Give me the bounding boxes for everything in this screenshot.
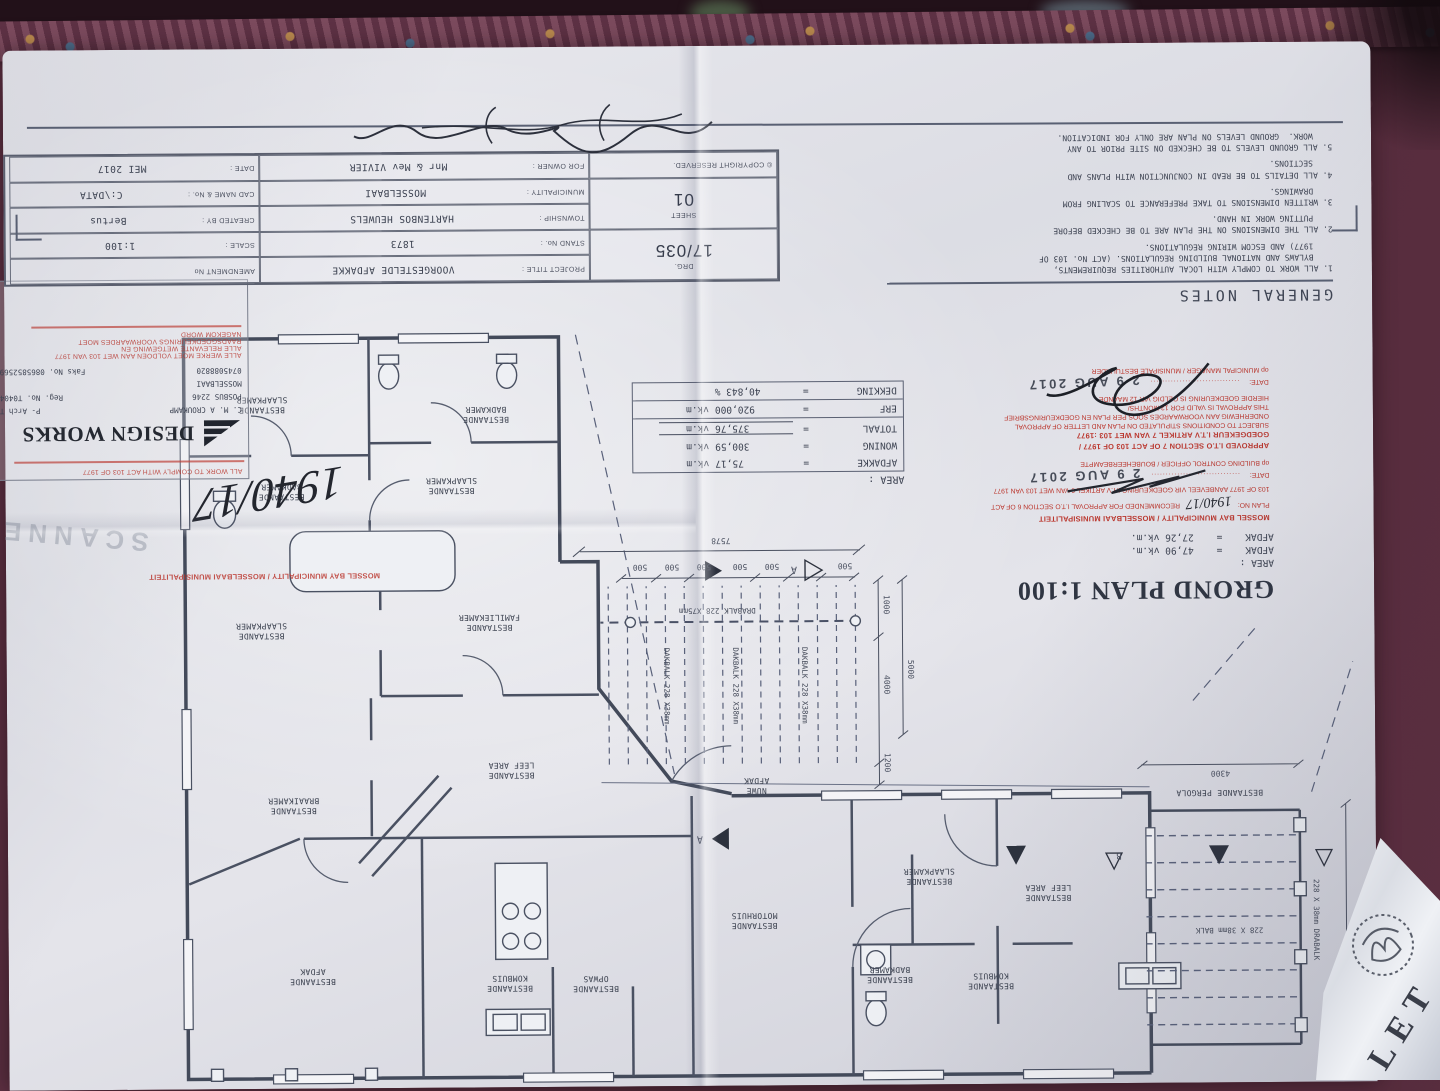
room-label-leef-area: BESTAANDE LEEF AREA [488,760,534,780]
field-label: AMENDMENT No [194,267,255,274]
area-unit: vk.m [659,458,715,469]
plan-heading: GROND PLAN 1:100 AREA : AFDAK = 47,90 vk… [954,531,1275,606]
plan-title: GROND PLAN 1:100 [954,574,1274,606]
area-unit [659,386,715,397]
red-rule [31,325,241,328]
room-label-kombuis: BESTAANDE KOMBUIS [487,974,533,994]
floor-plan-sheet: BESTAANDE SLAAPKAMER BESTAANDE BADKAMER … [2,41,1377,1091]
room-label-nuwe-afdak: NUWE AFDAK [744,776,770,795]
dim-500: 500 [765,562,780,571]
phone: 0745088820 [196,366,241,375]
project-title-cell: PROJECT TITLE : VOORGESTELDE AFDAKKE [260,255,590,283]
design-works-logo-icon [202,418,242,448]
plan-area-line: AFDAK = 47,90 vk.m. [954,544,1274,557]
room-label-slaapkamer: BESTAANDE SLAAPKAMER [236,621,287,641]
room-label-badkamer: BESTAANDE BADKAMER [867,965,913,985]
dim-4000: 4000 [882,675,891,694]
dim-500: 500 [838,561,853,570]
field-label: DATE : [230,164,255,171]
room-label-familiekamer: BESTAANDE FAMILIEKAMER [459,613,521,633]
field-label: TOWNSHIP : [539,213,584,220]
general-note-3: 3. WRITTEN DIMENSIONS TO TAKE PREFERANCE… [882,185,1332,211]
design-works-name: DESIGN WORKS [22,421,194,447]
person-name: C. M. A CROUKAMP [170,405,242,415]
section-marker-a: A [697,833,703,844]
field-value: 1873 [265,237,541,250]
general-note-5: 5. ALL GROUND LEVELS TO BE CHECKED ON SI… [882,130,1332,156]
dim-500: 500 [665,563,680,572]
equals: = [793,440,819,451]
room-label-pergola: BESTAANDE PERGOLA [1176,787,1263,797]
field-label: MUNICIPALITY : [526,188,584,195]
sheet-number: 01 [673,189,694,209]
design-works-city: MOSSELBAAI [0,379,242,390]
signature-municipal-manager [1039,353,1229,424]
general-note-1: 1. ALL WORK TO COMPLY WITH LOCAL AUTHORI… [883,240,1333,277]
general-note-4: 4. ALL DETAILS TO BE READ IN CONJUNCTION… [882,158,1332,184]
field-label: CAD NAME & No. : [188,190,255,197]
room-label-afdak: BESTAANDE AFDAK [290,967,336,987]
field-label: SCALE : [225,241,255,248]
red-overlay-line: ALL WORK TO COMPLY WITH ACT 103 OF 1977 [83,467,243,475]
pobox: POSBUS 2246 [192,392,242,401]
dim-500: 500 [733,562,748,571]
area-unit: vk.m [659,422,715,435]
area-value: 375,76 [715,421,793,435]
reg-no: Reg. No. T0404 [0,393,63,402]
area-row-afdakke: AFDAKKE = 75,17 vk.m [633,454,903,473]
area-row-totaal: TOTAAL = 375,76 vk.m [633,418,903,439]
beam-label-dakbalk: DAKBALK 228 X38mm [731,647,741,724]
signature-building-control [1059,462,1209,497]
stamp-date-label: DATE: [1249,376,1269,385]
area-unit: vk.m [659,441,715,452]
room-label-badkamer: BESTAANDE BADKAMER [463,405,509,425]
area-unit: vk.m [659,404,715,415]
area-name: ERF [819,403,897,415]
sheet-label: SHEET [671,211,696,218]
drg-cell: DRG. 17/035 [590,228,778,280]
scale-cell: SCALE : 1:100 [10,232,260,259]
area-name: TOTAAL [819,421,897,435]
plan-area-label: AREA : [954,557,1274,570]
person-title: P- Arch T [0,407,41,416]
general-note-2: 2. ALL THE DIMENSIONS ON THE PLAN ARE TO… [883,213,1333,239]
area-summary-box: AFDAKKE = 75,17 vk.m WONING = 300,59 vk.… [632,381,905,474]
area-row-woning: WONING = 300,59 vk.m [633,437,903,456]
section-marker-a: A [791,564,797,575]
created-by-cell: CREATED BY : Bertus [9,206,259,233]
area-name: AFDAKKE [819,457,897,469]
township-cell: TOWNSHIP : HARTENBOS HEUWELS [259,204,589,232]
general-notes: GENERAL NOTES 1. ALL WORK TO COMPLY WITH… [882,125,1333,306]
dim-5000: 5000 [906,660,915,679]
design-works-stamp: ALL WORK TO COMPLY WITH ACT 103 OF 1977 … [0,279,249,481]
beam-label-balk: 228 X 38mm BALK [1196,926,1264,935]
municipality-cell: MUNICIPALITY : MOSSELBAAI [259,178,589,206]
room-label-slaapkamer: BESTAANDE SLAAPKAMER [426,476,477,496]
area-value: 40,843 % [715,385,793,397]
field-value: HARTENBOS HEUWELS [265,212,540,225]
dim-1000: 1000 [882,595,891,614]
date-cell: DATE : MEI 2017 [9,155,259,182]
beam-label-drabalk2: 228 X 38mm DRABALK [1312,879,1322,960]
dim-500: 500 [697,562,712,571]
dim-1200: 1200 [883,753,892,772]
scanned-stamp: SCANNED [0,512,150,557]
sheet-content-rotated: BESTAANDE SLAAPKAMER BESTAANDE BADKAMER … [2,41,1377,1091]
plan-area-line: AFDAK = 27,26 vk.m. [954,531,1274,544]
municipal-stamps: MOSSEL BAY MUNICIPALITY / MOSSELBAAI MUN… [939,364,1270,524]
room-label-kombuis: BESTAANDE KOMBUIS [968,971,1014,991]
field-value: 1:100 [15,239,225,251]
cad-name-cell: CAD NAME & No. : C:\DATA [9,181,259,208]
rule [887,280,1333,285]
stand-no-cell: STAND No. : 1873 [260,230,590,258]
area-summary: AREA : AFDAKKE = 75,17 vk.m WONING = 300… [632,381,905,487]
design-works-phone: 0745088820 Faks No. 0865852569 [0,366,242,377]
beam-label-drabalk: DRABALK 228 X75mm [679,606,756,616]
area-row-dekking: DEKKING = 40,843 % [633,382,903,401]
section-marker-b: B [1116,850,1121,860]
room-label-braaikamer: BESTAANDE BRAAIKAMER [268,796,319,816]
stamp-date-label: DATE: [1250,470,1270,479]
field-value: Bertus [15,214,202,226]
drg-number: 17/035 [655,240,713,260]
city: MOSSELBAAI [197,379,242,388]
design-works-person: C. M. A CROUKAMP P- Arch T [0,405,242,416]
beam-label-dakbalk: DAKBALK 228 X38mm [662,648,672,725]
owner-signatures [342,86,723,173]
amendment-cell: AMENDMENT No [10,257,260,284]
area-value: 300,59 [715,440,793,452]
area-name: WONING [819,440,897,452]
corner-mark [16,215,42,241]
area-value: 920,000 [715,403,793,415]
room-label-leef-area: BESTAANDE LEEF AREA [1025,883,1071,903]
room-label-motorhuis: BESTAANDE MOTORHUIS [731,911,777,931]
drg-label: DRG. [674,262,693,269]
equals: = [793,457,819,468]
field-value: VOORGESTELDE AFDAKKE [265,263,522,276]
design-works-pobox: POSBUS 2246 Reg. No. T0404 [0,392,242,403]
area-row-erf: ERF = 920,000 vk.m [633,400,903,419]
equals: = [793,385,819,396]
equals: = [793,403,819,414]
dim-7578: 7578 [711,536,730,545]
dim-4300: 4300 [1211,769,1230,778]
dim-500: 500 [633,563,648,572]
general-notes-title: GENERAL NOTES [883,286,1333,307]
field-value: MOSSELBAAI [264,186,526,199]
stamp-plan-no-label: PLAN NO: [1238,493,1270,509]
room-label-slaapkamer: BESTAANDE SLAAPKAMER [904,867,955,887]
beam-label-dakbalk: DAKBALK 228 X38mm [800,647,810,724]
room-label-opwas: BESTAANDE OPWAS [573,974,619,994]
field-label: CREATED BY : [202,216,255,223]
field-label: STAND No. : [540,239,584,246]
field-value: MEI 2017 [14,163,230,176]
fax: Faks No. 0865852569 [0,367,85,377]
sheet-cell: SHEET 01 [589,177,777,230]
red-rule [14,460,244,464]
area-value: 75,17 [715,457,793,469]
field-label: PROJECT TITLE : [522,264,585,271]
area-summary-header: AREA : [632,474,904,487]
equals: = [793,421,819,434]
field-value: C:\DATA [14,188,187,200]
design-works-header: DESIGN WORKS [0,418,242,450]
area-name: DEKKING [819,385,897,397]
corner-mark [1331,205,1357,231]
